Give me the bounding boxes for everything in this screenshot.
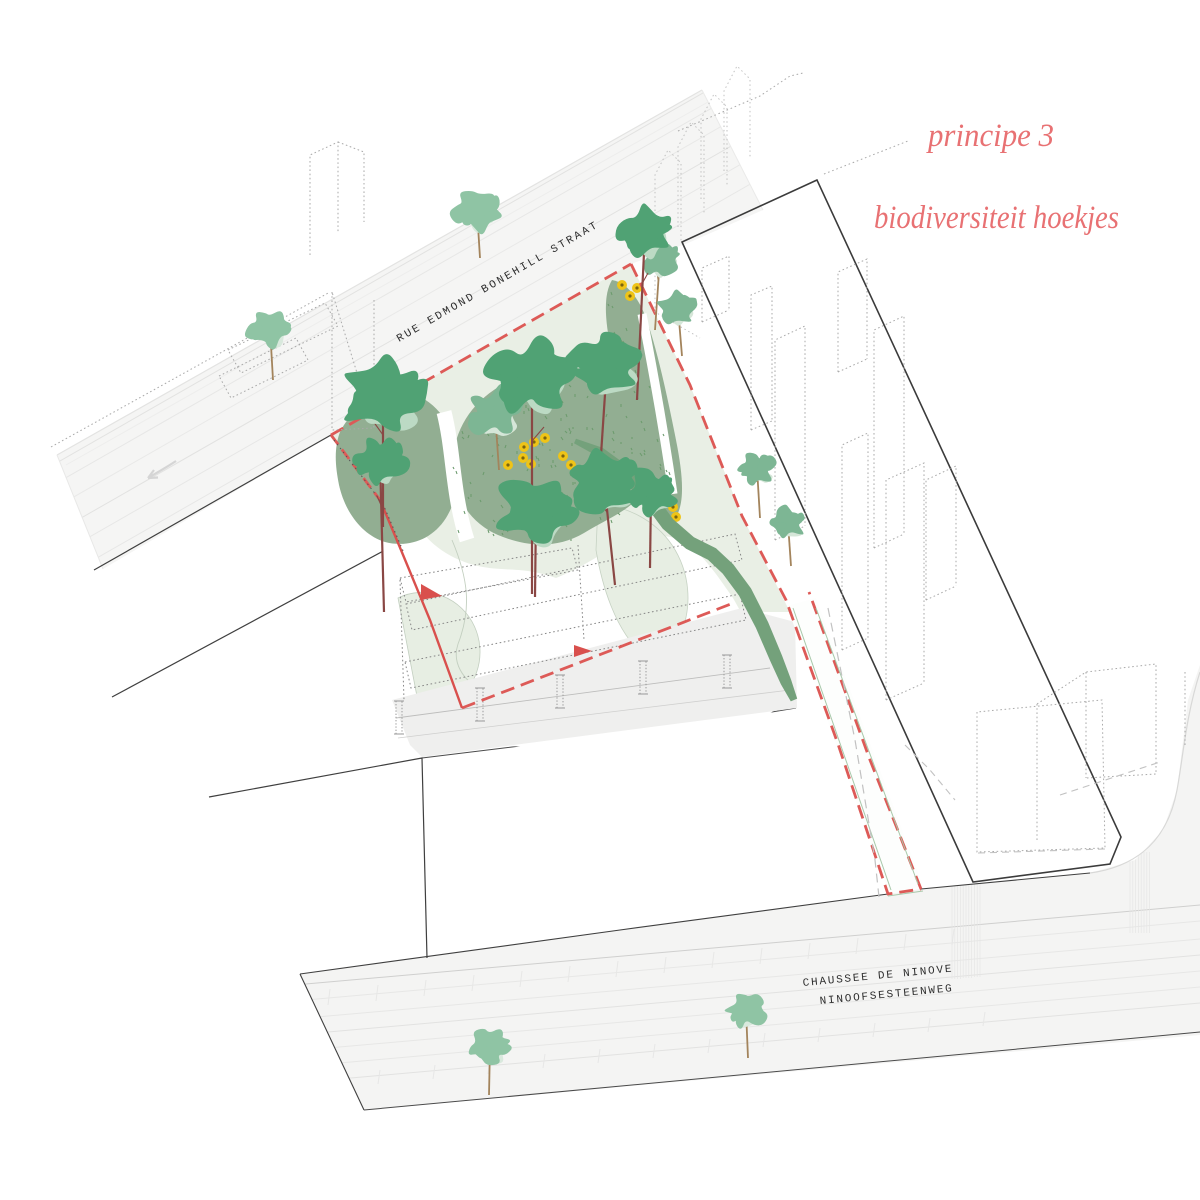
svg-text:principe 3: principe 3: [926, 118, 1054, 154]
svg-text:biodiversiteit hoekjes: biodiversiteit hoekjes: [874, 200, 1119, 236]
